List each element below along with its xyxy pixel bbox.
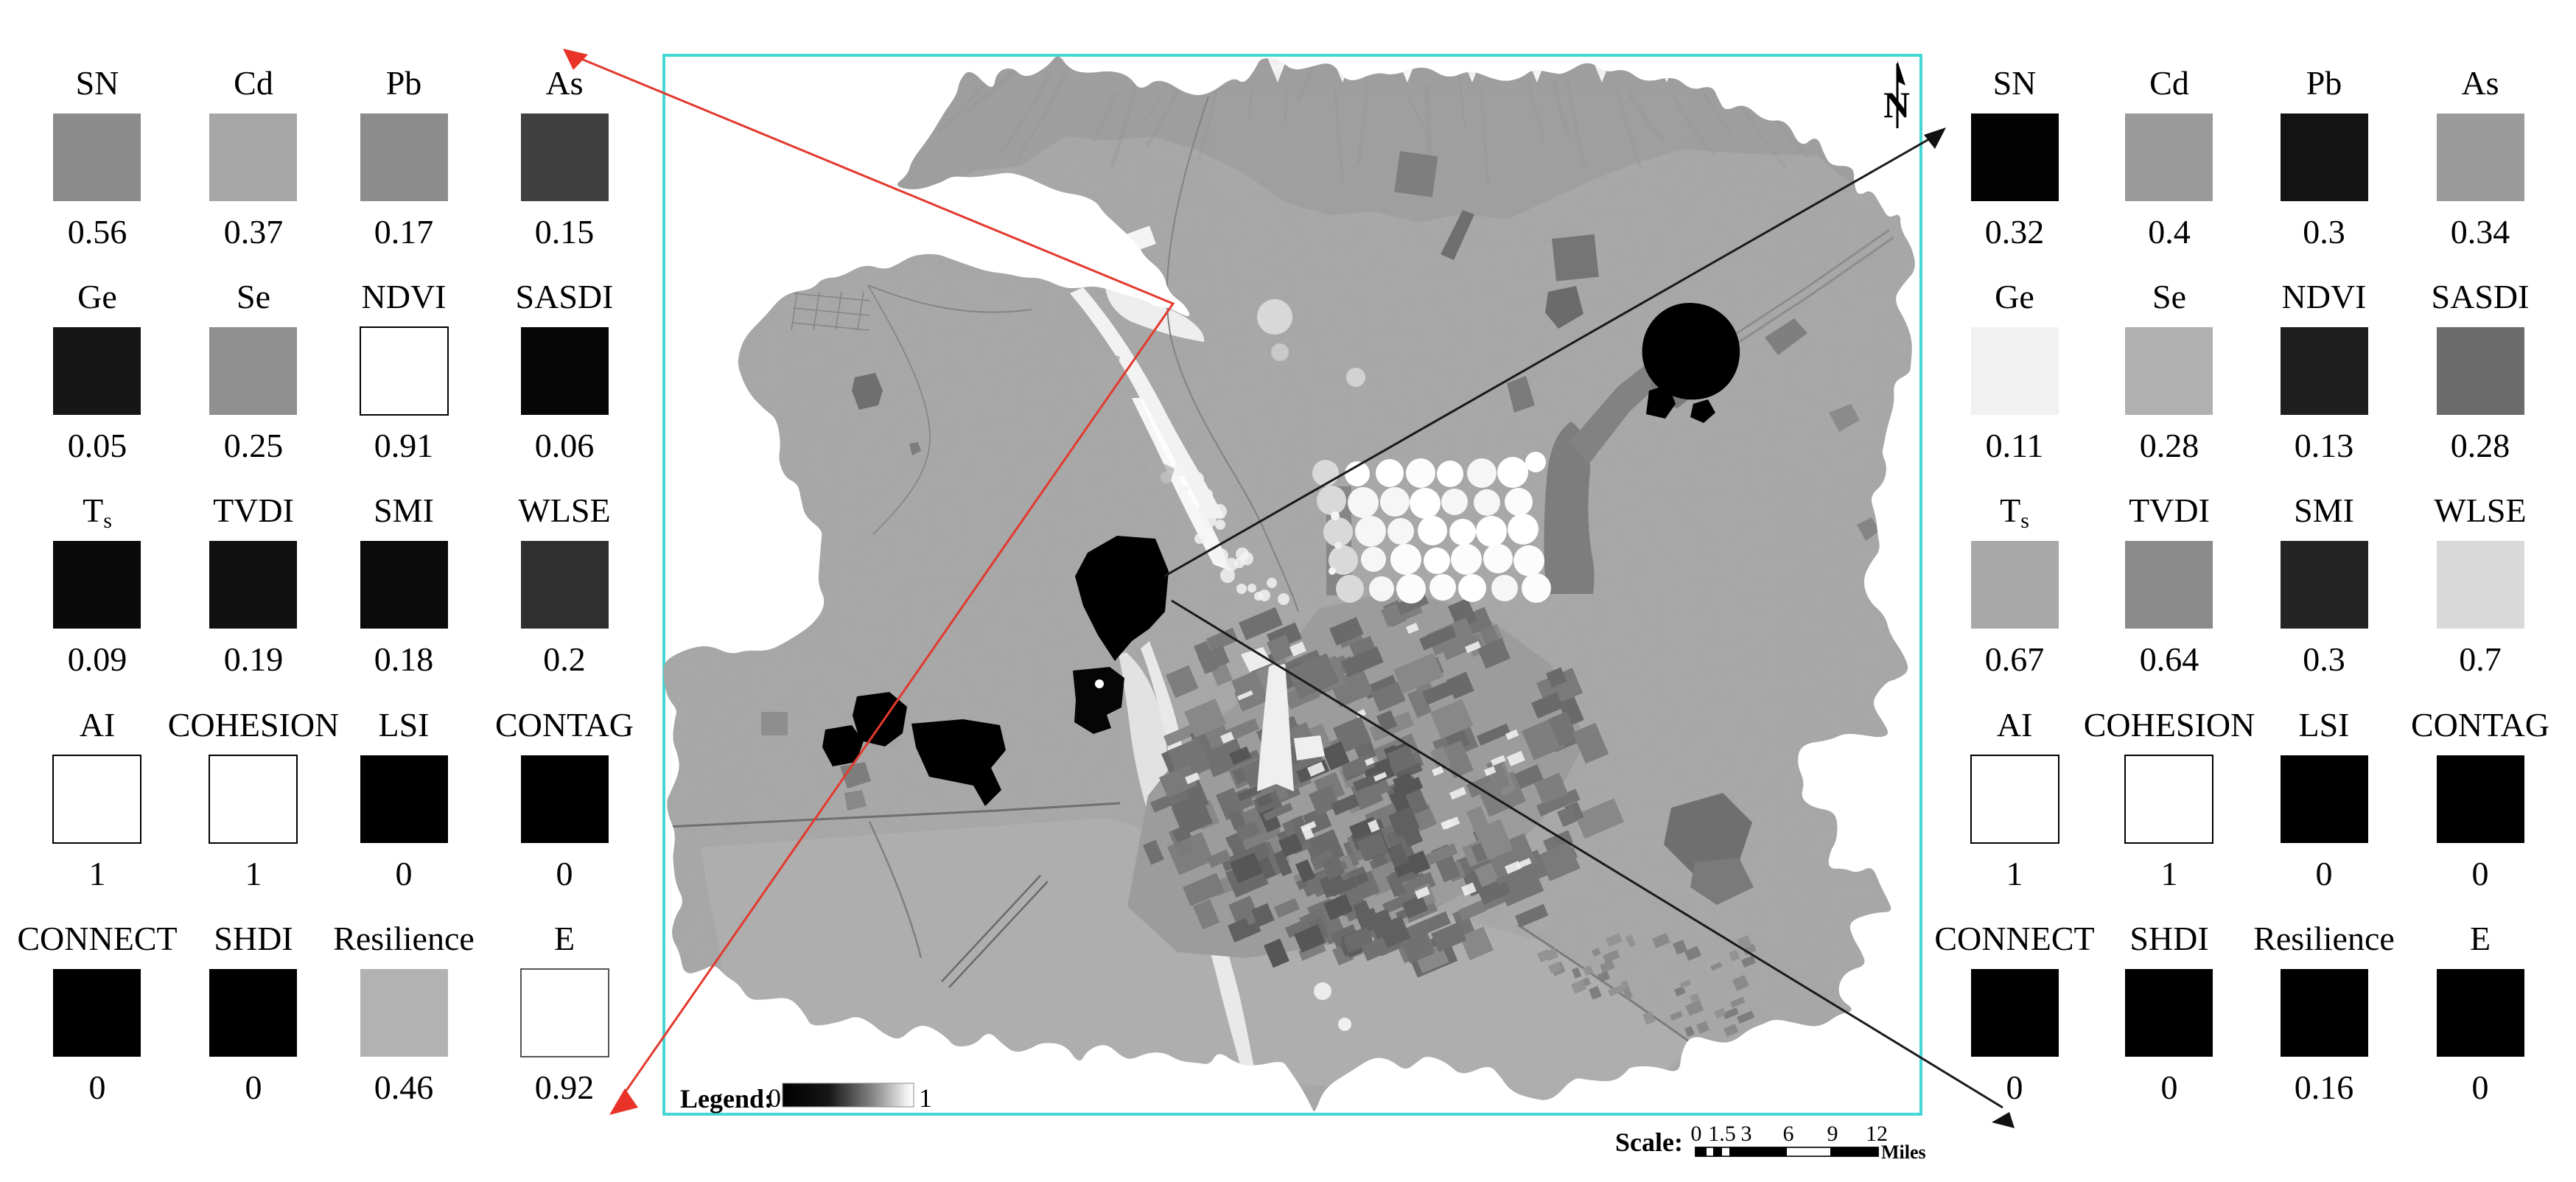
svg-text:CONNECT: CONNECT <box>1934 920 2094 957</box>
svg-text:0.56: 0.56 <box>68 213 127 251</box>
svg-text:CONNECT: CONNECT <box>17 920 177 957</box>
svg-text:0.91: 0.91 <box>374 427 434 464</box>
svg-text:0.7: 0.7 <box>2459 640 2502 678</box>
svg-text:0: 0 <box>2472 855 2489 892</box>
svg-text:SMI: SMI <box>2294 492 2354 529</box>
svg-text:0: 0 <box>768 1083 781 1113</box>
svg-text:0.92: 0.92 <box>535 1069 595 1106</box>
svg-text:0.64: 0.64 <box>2140 640 2199 678</box>
svg-text:0.3: 0.3 <box>2303 213 2345 251</box>
svg-text:E: E <box>2470 920 2491 957</box>
svg-text:9: 9 <box>1827 1122 1838 1146</box>
svg-text:SN: SN <box>1993 64 2037 102</box>
svg-text:0: 0 <box>2161 1069 2178 1106</box>
svg-text:0.19: 0.19 <box>224 640 284 678</box>
svg-text:WLSE: WLSE <box>518 492 610 529</box>
svg-text:0: 0 <box>2472 1069 2489 1106</box>
svg-text:0.13: 0.13 <box>2295 427 2354 464</box>
svg-text:0.06: 0.06 <box>535 427 595 464</box>
svg-text:0.18: 0.18 <box>374 640 434 678</box>
svg-text:As: As <box>2461 64 2499 102</box>
svg-text:0.32: 0.32 <box>1985 213 2045 251</box>
svg-text:NDVI: NDVI <box>2282 278 2367 315</box>
svg-text:1: 1 <box>2161 855 2178 892</box>
svg-text:1: 1 <box>89 855 106 892</box>
svg-text:LSI: LSI <box>2299 706 2350 744</box>
svg-text:Legend:: Legend: <box>680 1084 773 1113</box>
svg-text:0.28: 0.28 <box>2451 427 2510 464</box>
svg-text:CONTAG: CONTAG <box>2411 706 2549 744</box>
svg-text:1: 1 <box>245 855 262 892</box>
svg-text:Pb: Pb <box>2306 64 2342 102</box>
svg-text:0: 0 <box>556 855 573 892</box>
svg-text:0.67: 0.67 <box>1985 640 2045 678</box>
svg-text:0.25: 0.25 <box>224 427 284 464</box>
svg-text:LSI: LSI <box>379 706 430 744</box>
svg-text:0.34: 0.34 <box>2451 213 2510 251</box>
svg-text:WLSE: WLSE <box>2434 492 2526 529</box>
svg-text:1.5: 1.5 <box>1708 1122 1736 1146</box>
svg-text:N: N <box>1883 84 1910 125</box>
svg-text:AI: AI <box>80 706 116 744</box>
svg-text:1: 1 <box>2006 855 2023 892</box>
svg-text:0: 0 <box>2006 1069 2023 1106</box>
svg-text:0: 0 <box>2316 855 2333 892</box>
svg-text:0.11: 0.11 <box>1986 427 2044 464</box>
svg-text:Ge: Ge <box>77 278 117 315</box>
svg-text:SASDI: SASDI <box>516 278 614 315</box>
svg-text:Pb: Pb <box>386 64 422 102</box>
svg-text:0.28: 0.28 <box>2140 427 2199 464</box>
svg-text:Se: Se <box>237 278 270 315</box>
svg-text:Miles: Miles <box>1881 1141 1926 1163</box>
svg-text:As: As <box>545 64 583 102</box>
svg-text:0.15: 0.15 <box>535 213 595 251</box>
svg-text:AI: AI <box>1997 706 2033 744</box>
svg-text:Resilience: Resilience <box>2253 920 2395 957</box>
svg-text:0.05: 0.05 <box>68 427 127 464</box>
svg-text:0: 0 <box>396 855 413 892</box>
svg-text:Cd: Cd <box>2149 64 2189 102</box>
svg-text:TVDI: TVDI <box>213 492 294 529</box>
svg-text:0.37: 0.37 <box>224 213 284 251</box>
svg-text:0.2: 0.2 <box>543 640 586 678</box>
svg-text:COHESION: COHESION <box>168 706 340 744</box>
svg-text:SMI: SMI <box>374 492 434 529</box>
svg-text:3: 3 <box>1741 1122 1752 1146</box>
svg-text:0.3: 0.3 <box>2303 640 2345 678</box>
svg-text:Scale:: Scale: <box>1615 1127 1683 1157</box>
svg-text:1: 1 <box>919 1083 932 1113</box>
svg-text:SHDI: SHDI <box>214 920 293 957</box>
svg-text:Se: Se <box>2152 278 2186 315</box>
svg-text:NDVI: NDVI <box>362 278 447 315</box>
svg-text:6: 6 <box>1783 1122 1794 1146</box>
svg-text:COHESION: COHESION <box>2084 706 2255 744</box>
svg-text:Ge: Ge <box>1995 278 2034 315</box>
svg-text:0.09: 0.09 <box>68 640 127 678</box>
svg-text:Resilience: Resilience <box>333 920 475 957</box>
svg-text:SHDI: SHDI <box>2129 920 2208 957</box>
svg-text:SASDI: SASDI <box>2432 278 2530 315</box>
svg-text:0: 0 <box>89 1069 106 1106</box>
svg-text:0: 0 <box>1691 1122 1702 1146</box>
svg-text:Cd: Cd <box>234 64 273 102</box>
svg-text:0.46: 0.46 <box>374 1069 434 1106</box>
svg-text:CONTAG: CONTAG <box>495 706 634 744</box>
svg-text:0: 0 <box>245 1069 262 1106</box>
svg-text:0.16: 0.16 <box>2295 1069 2354 1106</box>
svg-text:0.17: 0.17 <box>374 213 434 251</box>
svg-text:TVDI: TVDI <box>2129 492 2210 529</box>
svg-text:SN: SN <box>76 64 119 102</box>
svg-text:E: E <box>554 920 575 957</box>
svg-text:0.4: 0.4 <box>2148 213 2191 251</box>
